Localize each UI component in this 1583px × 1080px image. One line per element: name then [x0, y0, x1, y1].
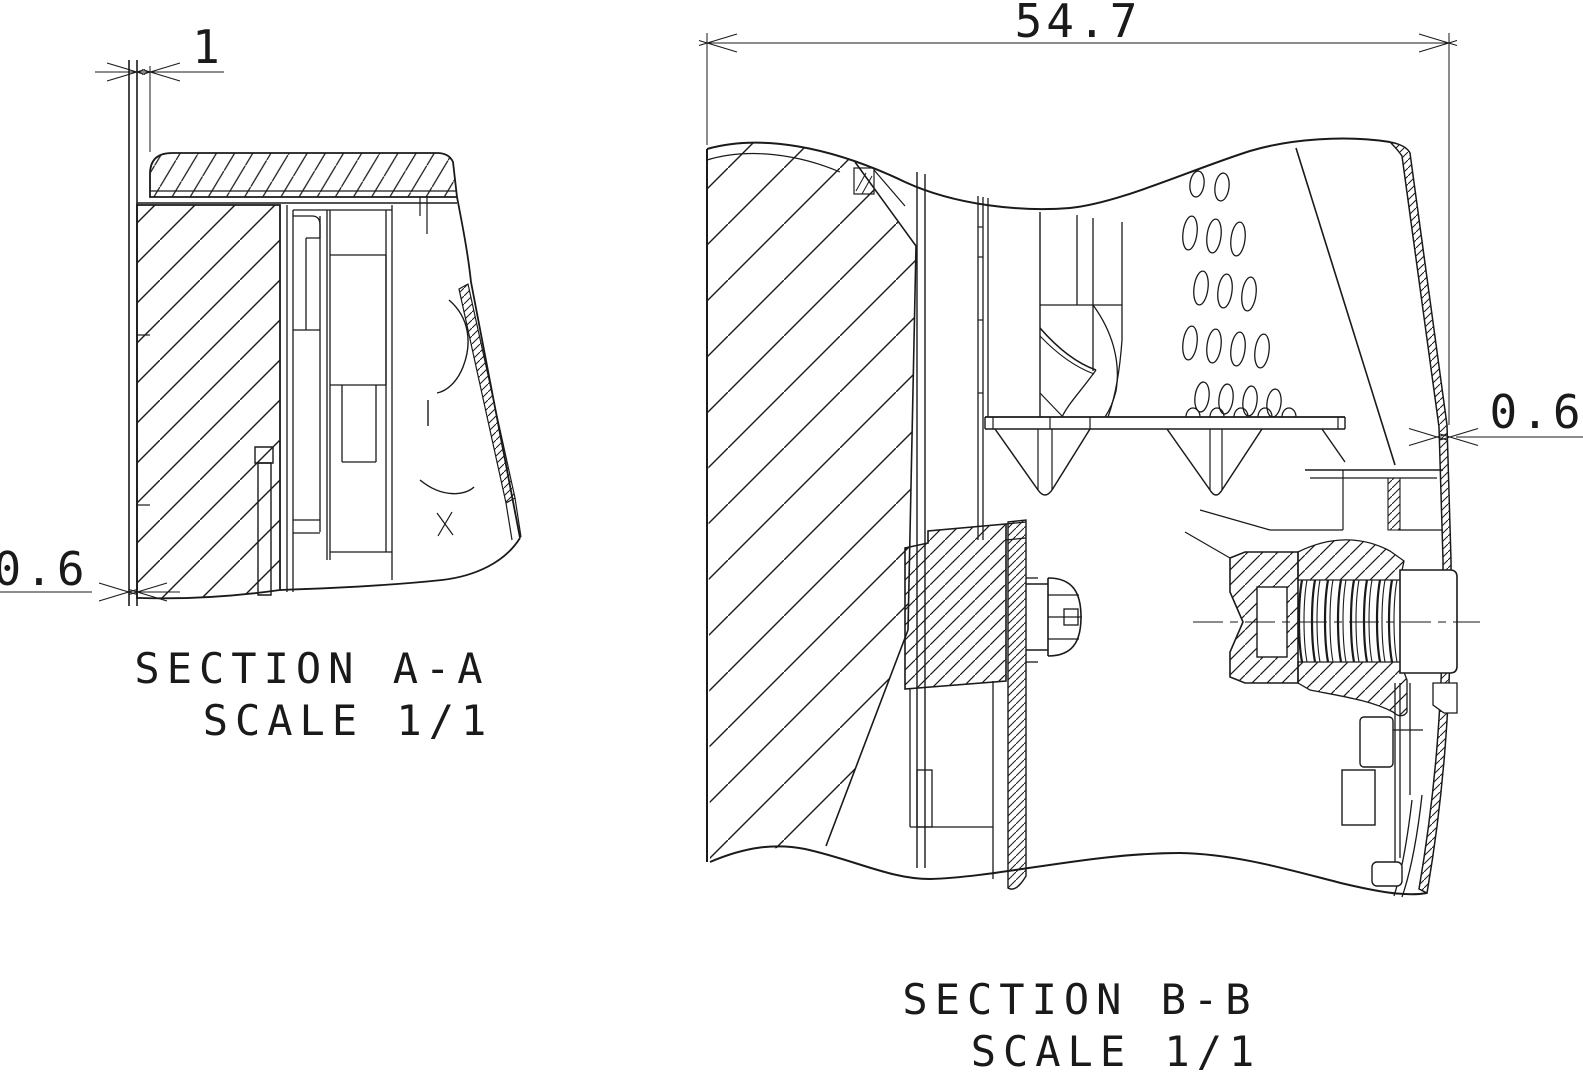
- drawing-page: 1 0.6 SECTION A-A SCALE 1/1: [0, 0, 1583, 1080]
- boss-cross-section: [905, 524, 1006, 689]
- internal-connector: [287, 205, 392, 592]
- section-a-title: SECTION A-A: [134, 644, 489, 693]
- section-b-geometry: [707, 139, 1480, 897]
- lower-bracket: [910, 681, 993, 879]
- section-a-geometry: [129, 60, 521, 606]
- engineering-drawing: 1 0.6 SECTION A-A SCALE 1/1: [0, 0, 1583, 1080]
- plate-spike: [1167, 429, 1262, 495]
- contact-plate: [985, 417, 1345, 495]
- section-a-scale: SCALE 1/1: [203, 696, 494, 745]
- dimension-wall-b-label: 0.6: [1489, 385, 1583, 439]
- dimension-gap-1: 1: [95, 20, 224, 152]
- housing-cross-section: [707, 143, 916, 862]
- hanger-column: [978, 196, 988, 540]
- right-shell: [280, 197, 521, 590]
- slotted-screw: [1026, 578, 1082, 662]
- dimension-wall-a-label: 0.6: [0, 542, 89, 596]
- bottom-break-line: [710, 846, 1427, 894]
- section-a-view: 1 0.6 SECTION A-A SCALE 1/1: [0, 20, 521, 745]
- section-b-view: 54.7 0.6 SECTION B-B SCALE 1/1: [699, 0, 1583, 1076]
- dimension-overall-width-label: 54.7: [1015, 0, 1142, 48]
- plate-spike: [995, 429, 1090, 495]
- section-b-title: SECTION B-B: [902, 975, 1257, 1024]
- clip-curve: [437, 300, 468, 393]
- perforation-holes: [1181, 170, 1296, 418]
- thin-shell-strip: [459, 284, 515, 503]
- dimension-gap-1-label: 1: [192, 20, 224, 74]
- section-b-scale: SCALE 1/1: [971, 1027, 1262, 1076]
- thin-plate: [1008, 520, 1026, 889]
- drive-shaft-flutes: [1040, 212, 1122, 417]
- thread-profile: [1299, 580, 1397, 662]
